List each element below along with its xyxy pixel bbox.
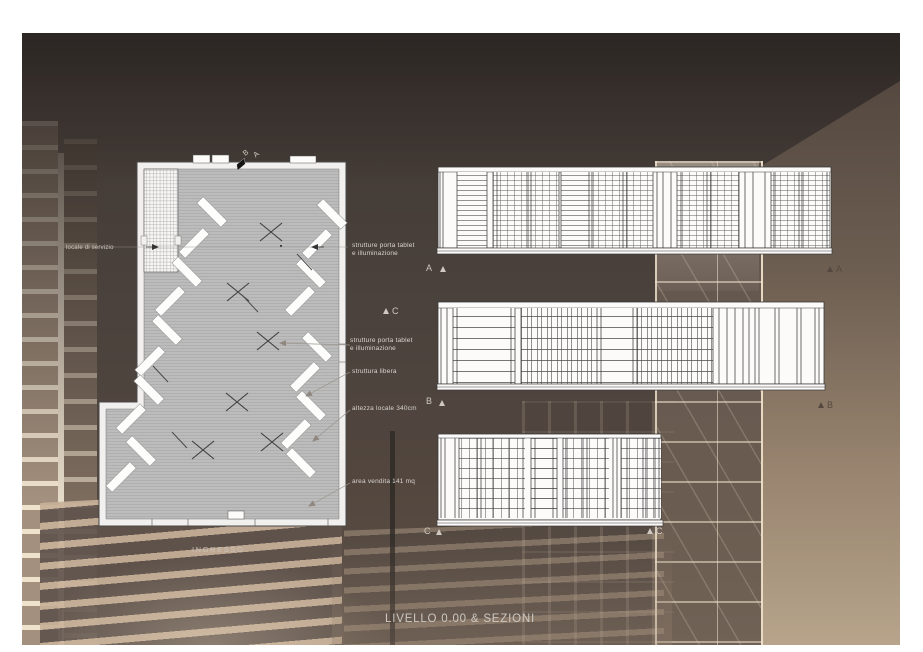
label-tablet-structures-1-line1: strutture porta tablet bbox=[352, 242, 415, 249]
section-b-marker-right-arrow-icon bbox=[818, 402, 824, 408]
service-room-door-left bbox=[141, 236, 147, 245]
section-c-marker-left: C bbox=[424, 526, 431, 536]
section-b-marker-right: B bbox=[827, 400, 833, 410]
top-wall-opening bbox=[193, 155, 210, 163]
top-wall-opening bbox=[290, 156, 316, 163]
section-c-mid-arrow-icon bbox=[383, 308, 389, 314]
section-a-drawing bbox=[437, 167, 832, 254]
section-b-marker-left: B bbox=[426, 396, 432, 406]
service-room-door-right bbox=[175, 236, 181, 245]
section-a-marker-right: A bbox=[836, 264, 842, 274]
cut-marker-letter-a: A bbox=[251, 149, 261, 159]
plan-service-room bbox=[144, 169, 178, 272]
section-a-marker-left: A bbox=[426, 263, 432, 273]
label-free-structure: struttura libera bbox=[352, 368, 397, 375]
drawings-overlay: B A bbox=[0, 0, 923, 652]
label-tablet-structures-1-line2: e illuminazione bbox=[352, 250, 398, 257]
section-c-drawing bbox=[437, 434, 663, 526]
label-entrance: INGRESSO bbox=[192, 545, 244, 554]
section-c-marker-left-arrow-icon bbox=[436, 529, 442, 535]
section-b-marker-left-arrow-icon bbox=[439, 400, 445, 406]
section-b-drawing bbox=[437, 302, 825, 390]
presentation-board: B A bbox=[0, 0, 923, 652]
label-service-room: locale di servizio bbox=[66, 245, 114, 251]
cut-marker-letter-b: B bbox=[241, 148, 251, 158]
top-wall-opening bbox=[212, 155, 229, 163]
label-tablet-structures-2-line1: strutture porta tablet bbox=[350, 337, 413, 344]
board-title: LIVELLO 0.00 & SEZIONI bbox=[385, 613, 535, 625]
section-c-mid-marker: C bbox=[392, 306, 399, 316]
floor-plan: B A bbox=[92, 143, 350, 526]
section-c-marker-right: C bbox=[656, 526, 663, 536]
label-sales-area: area vendita 141 mq bbox=[352, 478, 415, 485]
section-c-marker-right-arrow-icon bbox=[647, 528, 653, 534]
label-tablet-structures-2-line2: e illuminazione bbox=[350, 345, 396, 352]
label-room-height: altezza locale 340cm bbox=[352, 405, 417, 412]
section-a-marker-left-arrow-icon bbox=[440, 266, 446, 272]
section-a-marker-right-arrow-icon bbox=[827, 266, 833, 272]
bottom-wall-notch bbox=[228, 511, 244, 519]
